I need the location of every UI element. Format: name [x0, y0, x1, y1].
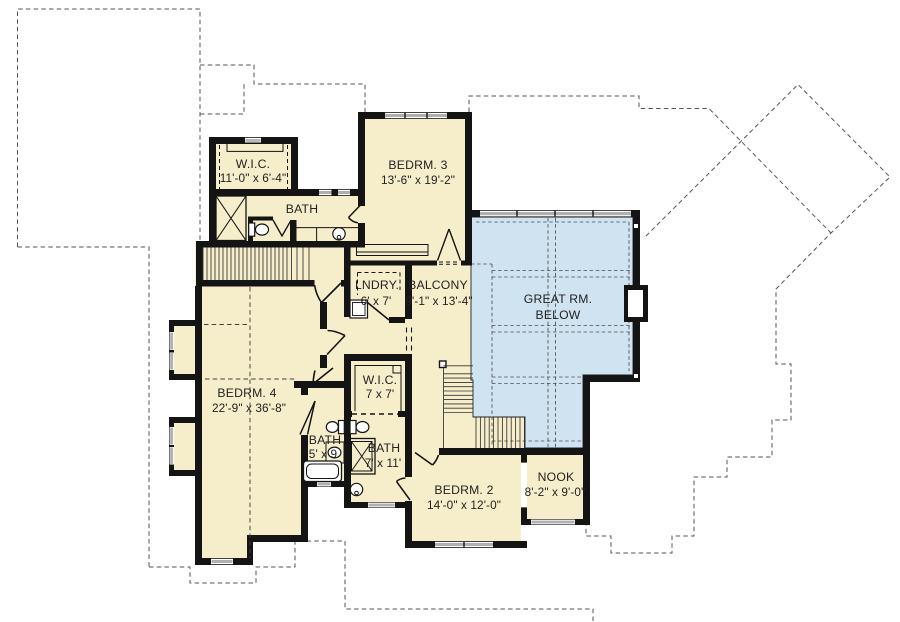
svg-text:7' x 11': 7' x 11' — [365, 456, 402, 470]
svg-text:6' x 7': 6' x 7' — [361, 294, 392, 308]
svg-text:BATH: BATH — [286, 202, 318, 216]
svg-text:14'-0" x 12'-0": 14'-0" x 12'-0" — [427, 498, 501, 512]
svg-text:BATH: BATH — [309, 433, 341, 447]
svg-text:BEDRM. 4: BEDRM. 4 — [217, 386, 276, 400]
svg-text:LNDRY.: LNDRY. — [355, 278, 399, 292]
svg-text:9'-1" x 13'-4": 9'-1" x 13'-4" — [405, 294, 472, 308]
svg-text:W.I.C.: W.I.C. — [236, 157, 270, 171]
svg-text:13'-6" x 19'-2": 13'-6" x 19'-2" — [381, 173, 455, 187]
svg-text:BALCONY: BALCONY — [408, 278, 468, 292]
svg-text:NOOK: NOOK — [538, 470, 575, 484]
svg-text:7 x 7': 7 x 7' — [366, 387, 394, 401]
svg-text:22'-9" x 36'-8": 22'-9" x 36'-8" — [212, 401, 286, 415]
svg-text:BEDRM. 2: BEDRM. 2 — [434, 483, 493, 497]
svg-text:BEDRM. 3: BEDRM. 3 — [388, 158, 447, 172]
svg-text:GREAT RM.: GREAT RM. — [524, 292, 592, 306]
svg-text:11'-0" x 6'-4": 11'-0" x 6'-4" — [220, 171, 287, 185]
svg-text:W.I.C.: W.I.C. — [363, 373, 397, 387]
svg-text:BELOW: BELOW — [535, 308, 580, 322]
svg-text:5' x 9: 5' x 9 — [309, 447, 337, 461]
svg-text:8'-2" x 9'-0": 8'-2" x 9'-0" — [525, 485, 586, 499]
svg-text:BATH: BATH — [368, 441, 400, 455]
